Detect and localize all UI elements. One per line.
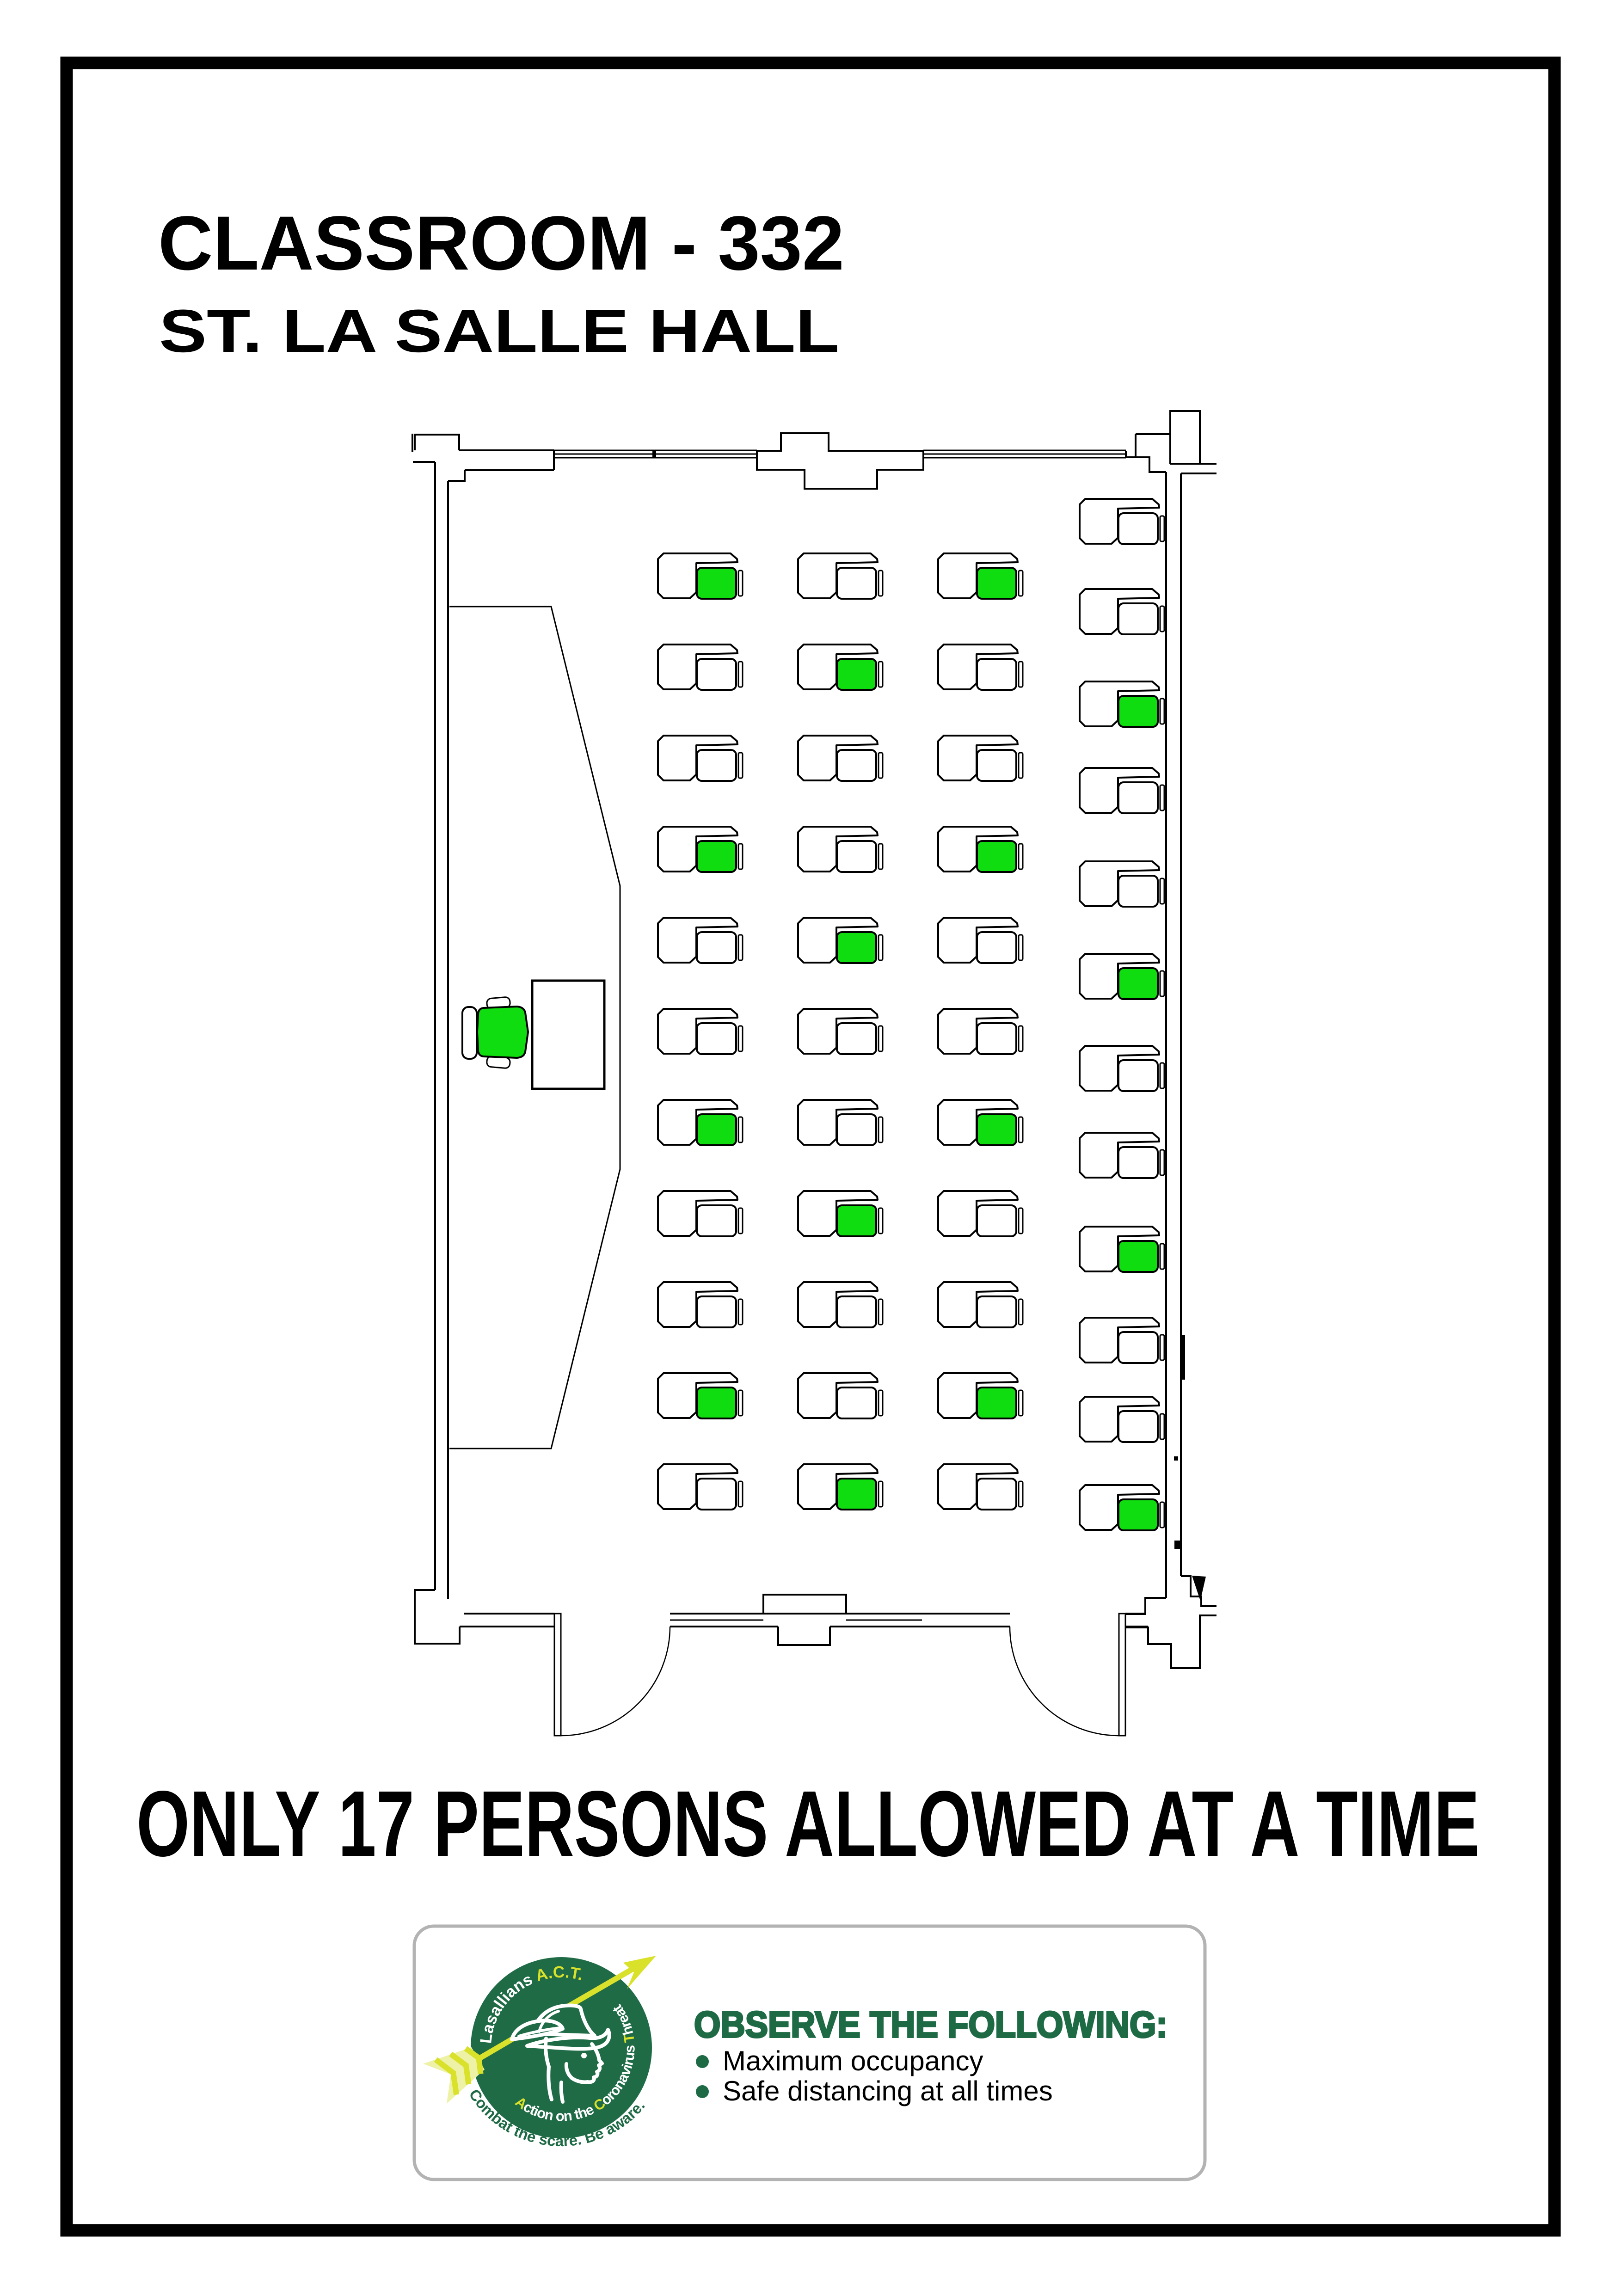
- svg-text:Maximum occupancy: Maximum occupancy: [723, 2045, 983, 2076]
- svg-text:OBSERVE THE FOLLOWING:: OBSERVE THE FOLLOWING:: [694, 2004, 1167, 2045]
- svg-text:ST. LA SALLE HALL: ST. LA SALLE HALL: [159, 297, 839, 365]
- svg-text:CLASSROOM - 332: CLASSROOM - 332: [158, 201, 844, 286]
- svg-text:ONLY 17 PERSONS ALLOWED AT A T: ONLY 17 PERSONS ALLOWED AT A TIME: [136, 1771, 1480, 1876]
- svg-text:Safe distancing at all times: Safe distancing at all times: [723, 2075, 1053, 2106]
